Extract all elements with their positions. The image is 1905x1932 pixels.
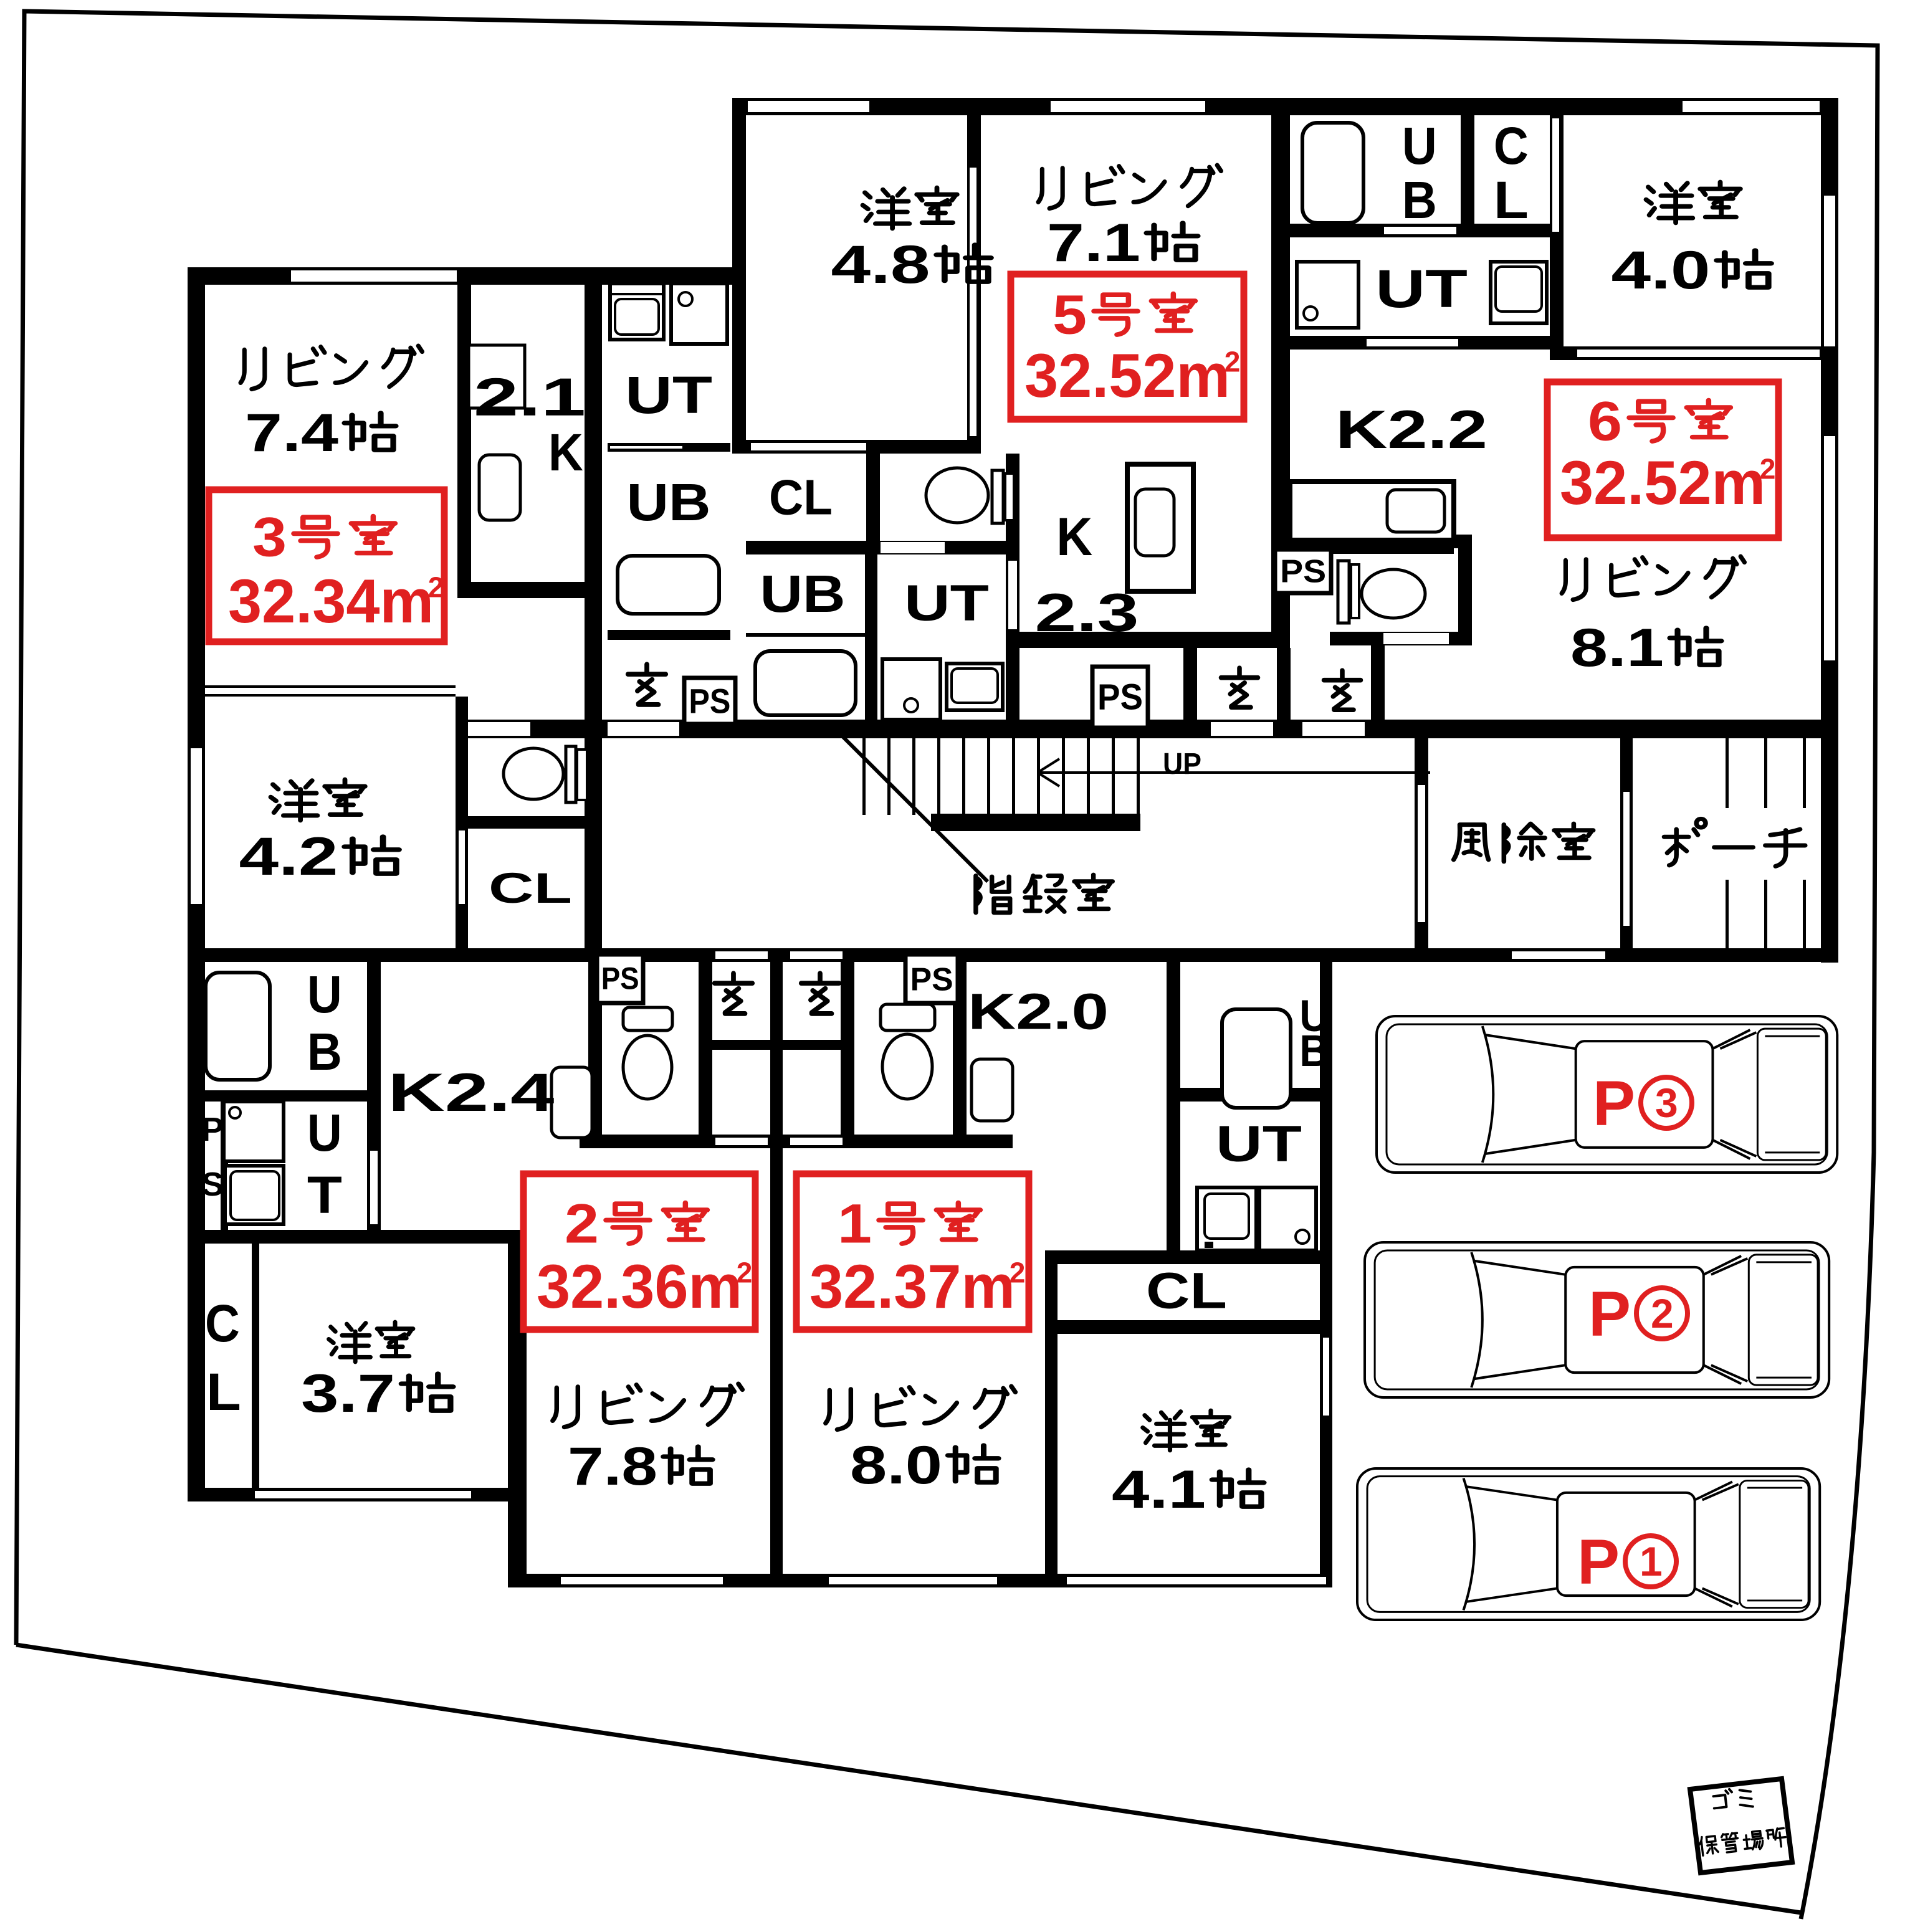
svg-text:PS: PS — [910, 961, 953, 997]
svg-text:PS: PS — [1280, 553, 1326, 589]
svg-text:3: 3 — [252, 506, 287, 568]
svg-text:2: 2 — [565, 1192, 599, 1255]
svg-text:UT: UT — [1216, 1115, 1302, 1172]
svg-text:1: 1 — [1640, 1538, 1663, 1584]
svg-text:32.34m: 32.34m — [228, 566, 434, 635]
svg-text:2: 2 — [737, 1257, 753, 1289]
svg-text:32.36m: 32.36m — [537, 1252, 742, 1321]
svg-text:4.1: 4.1 — [1112, 1460, 1206, 1520]
svg-text:UT: UT — [625, 366, 712, 424]
svg-text:PS: PS — [1097, 677, 1143, 717]
svg-text:7.4: 7.4 — [245, 403, 338, 463]
svg-text:P: P — [1593, 1068, 1635, 1139]
svg-text:L: L — [1494, 171, 1529, 229]
svg-text:UT: UT — [904, 574, 989, 631]
svg-text:K: K — [548, 423, 583, 482]
svg-text:2.3: 2.3 — [1035, 583, 1139, 643]
svg-text:UT: UT — [1375, 259, 1468, 319]
svg-text:2: 2 — [1225, 346, 1241, 378]
svg-text:4.8: 4.8 — [831, 235, 930, 295]
svg-text:3: 3 — [1655, 1080, 1678, 1126]
svg-text:L: L — [206, 1363, 241, 1421]
svg-text:PS: PS — [689, 682, 730, 721]
svg-text:P: P — [1577, 1526, 1620, 1597]
svg-text:CL: CL — [489, 864, 572, 912]
svg-text:32.37m: 32.37m — [809, 1252, 1015, 1321]
svg-text:3.7: 3.7 — [301, 1364, 395, 1424]
svg-text:U: U — [1402, 117, 1437, 175]
svg-text:C: C — [1494, 117, 1529, 175]
svg-text:K2.2: K2.2 — [1335, 400, 1487, 460]
svg-text:T: T — [307, 1166, 342, 1224]
svg-text:K: K — [1056, 507, 1092, 567]
svg-text:2: 2 — [1010, 1257, 1026, 1289]
svg-text:6: 6 — [1588, 390, 1622, 452]
svg-text:2.1: 2.1 — [474, 368, 586, 427]
svg-text:UB: UB — [627, 473, 711, 531]
svg-text:B: B — [1402, 171, 1437, 229]
svg-text:S: S — [201, 1166, 224, 1203]
svg-text:8.0: 8.0 — [850, 1435, 942, 1495]
svg-text:4.0: 4.0 — [1611, 240, 1711, 300]
svg-text:K2.4: K2.4 — [388, 1063, 555, 1123]
svg-text:1: 1 — [838, 1192, 872, 1255]
svg-text:P: P — [1588, 1278, 1631, 1349]
svg-text:UP: UP — [1163, 748, 1201, 781]
svg-text:7.8: 7.8 — [568, 1437, 657, 1497]
svg-text:CL: CL — [769, 470, 833, 525]
svg-text:CL: CL — [1146, 1262, 1227, 1319]
svg-text:2: 2 — [1760, 453, 1776, 485]
svg-text:4.2: 4.2 — [239, 827, 338, 887]
svg-text:B: B — [1299, 1027, 1329, 1076]
svg-text:C: C — [205, 1294, 240, 1353]
svg-text:B: B — [307, 1022, 342, 1081]
svg-text:32.52m: 32.52m — [1024, 341, 1230, 410]
svg-text:5: 5 — [1053, 283, 1087, 346]
svg-text:8.1: 8.1 — [1570, 618, 1664, 678]
svg-text:2: 2 — [1651, 1290, 1674, 1336]
svg-text:K2.0: K2.0 — [968, 983, 1109, 1040]
svg-text:U: U — [307, 1103, 342, 1162]
svg-text:32.52m: 32.52m — [1560, 448, 1765, 517]
svg-text:P: P — [201, 1111, 224, 1148]
svg-text:2: 2 — [428, 571, 444, 604]
svg-text:U: U — [307, 965, 342, 1024]
svg-text:7.1: 7.1 — [1047, 213, 1140, 273]
svg-text:PS: PS — [601, 961, 639, 996]
svg-text:UB: UB — [760, 564, 846, 623]
